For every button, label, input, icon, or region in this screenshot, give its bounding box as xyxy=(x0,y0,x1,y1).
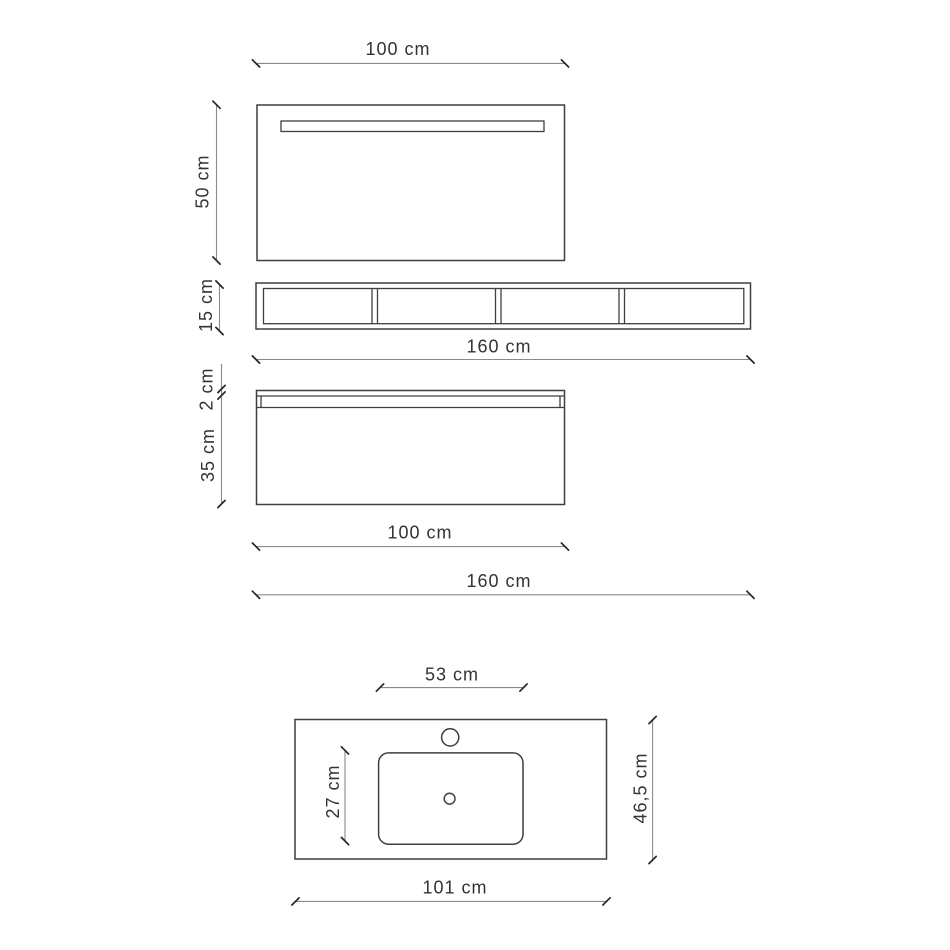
svg-text:53 cm: 53 cm xyxy=(425,665,479,685)
svg-text:101 cm: 101 cm xyxy=(422,878,487,898)
svg-text:50 cm: 50 cm xyxy=(193,154,213,208)
svg-text:15 cm: 15 cm xyxy=(196,278,216,332)
svg-text:160 cm: 160 cm xyxy=(466,571,531,591)
svg-text:46,5 cm: 46,5 cm xyxy=(631,752,651,823)
svg-text:2 cm: 2 cm xyxy=(197,367,217,410)
svg-text:35 cm: 35 cm xyxy=(198,428,218,482)
svg-text:160 cm: 160 cm xyxy=(466,337,531,357)
svg-text:27 cm: 27 cm xyxy=(323,764,343,818)
svg-text:100 cm: 100 cm xyxy=(387,523,452,543)
svg-text:100 cm: 100 cm xyxy=(365,39,430,59)
